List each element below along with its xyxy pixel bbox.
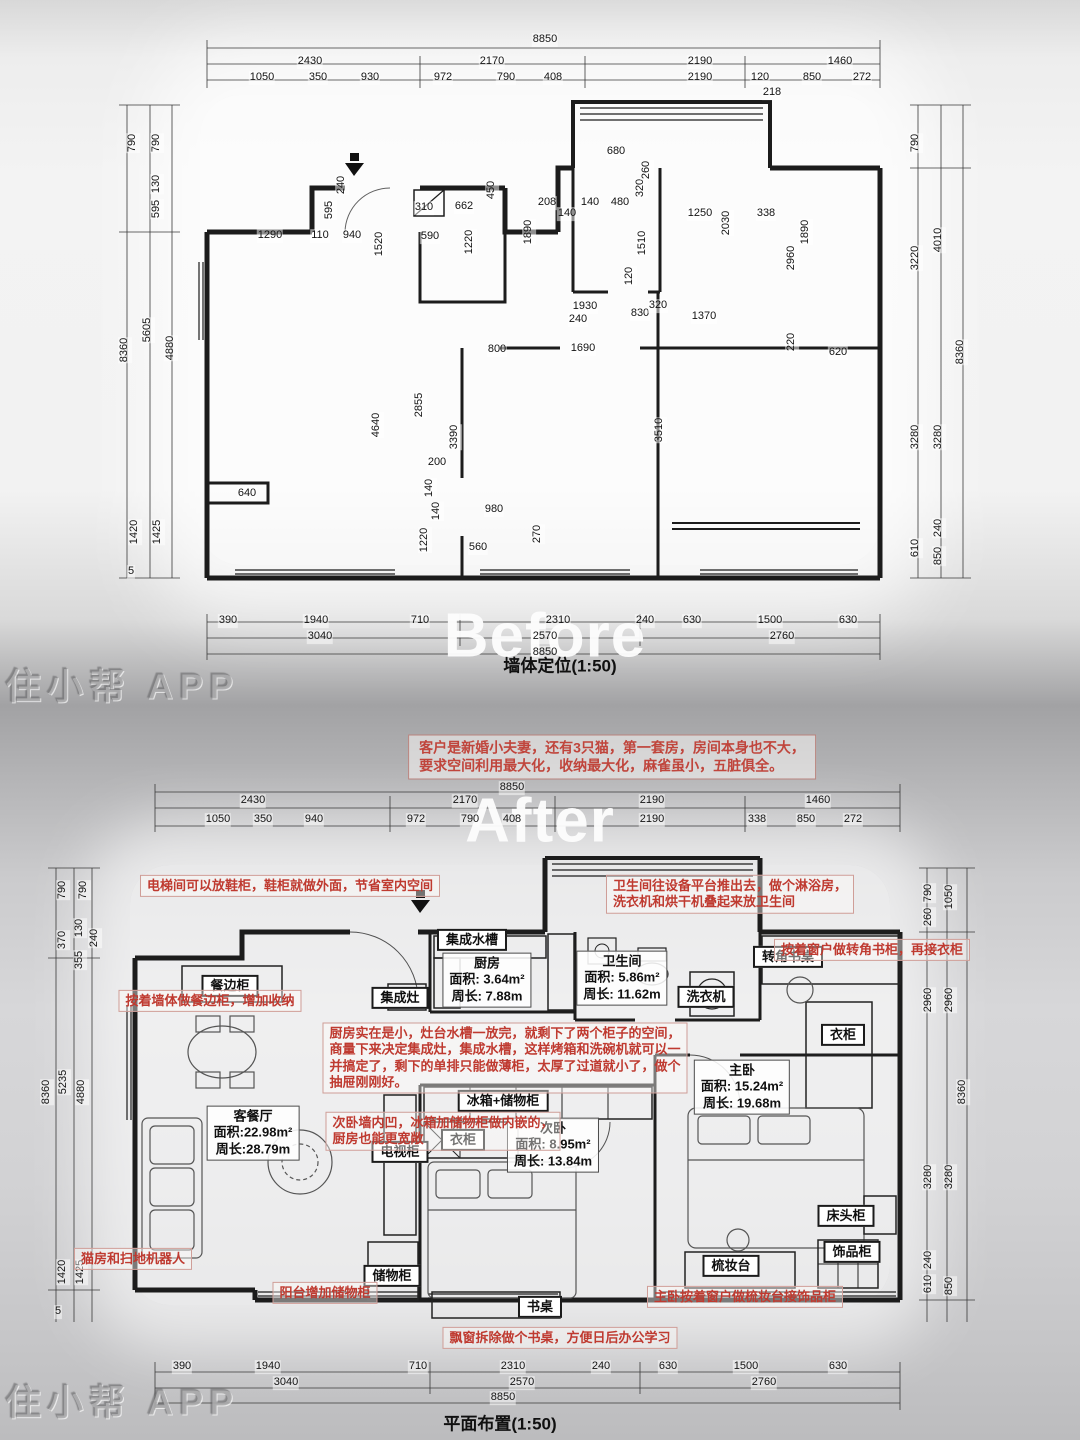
after-dim-rails [48, 784, 975, 1410]
floorplan-page: { "watermark_text": "住小帮 APP", "common":… [0, 0, 1080, 1440]
floorplan-drawing [0, 0, 1080, 1440]
before-walls [199, 102, 880, 578]
after-master-bedroom-furniture [685, 936, 900, 1288]
after-living-furniture [142, 966, 416, 1258]
after-entry-arrow [411, 890, 430, 913]
after-bath-fixtures [588, 938, 734, 1016]
after-second-bedroom-furniture [368, 1087, 652, 1318]
after-kitchen-fixtures [388, 934, 574, 1010]
before-entry-arrow [345, 153, 364, 176]
after-walls [127, 858, 900, 1300]
before-dim-rails [119, 40, 971, 660]
